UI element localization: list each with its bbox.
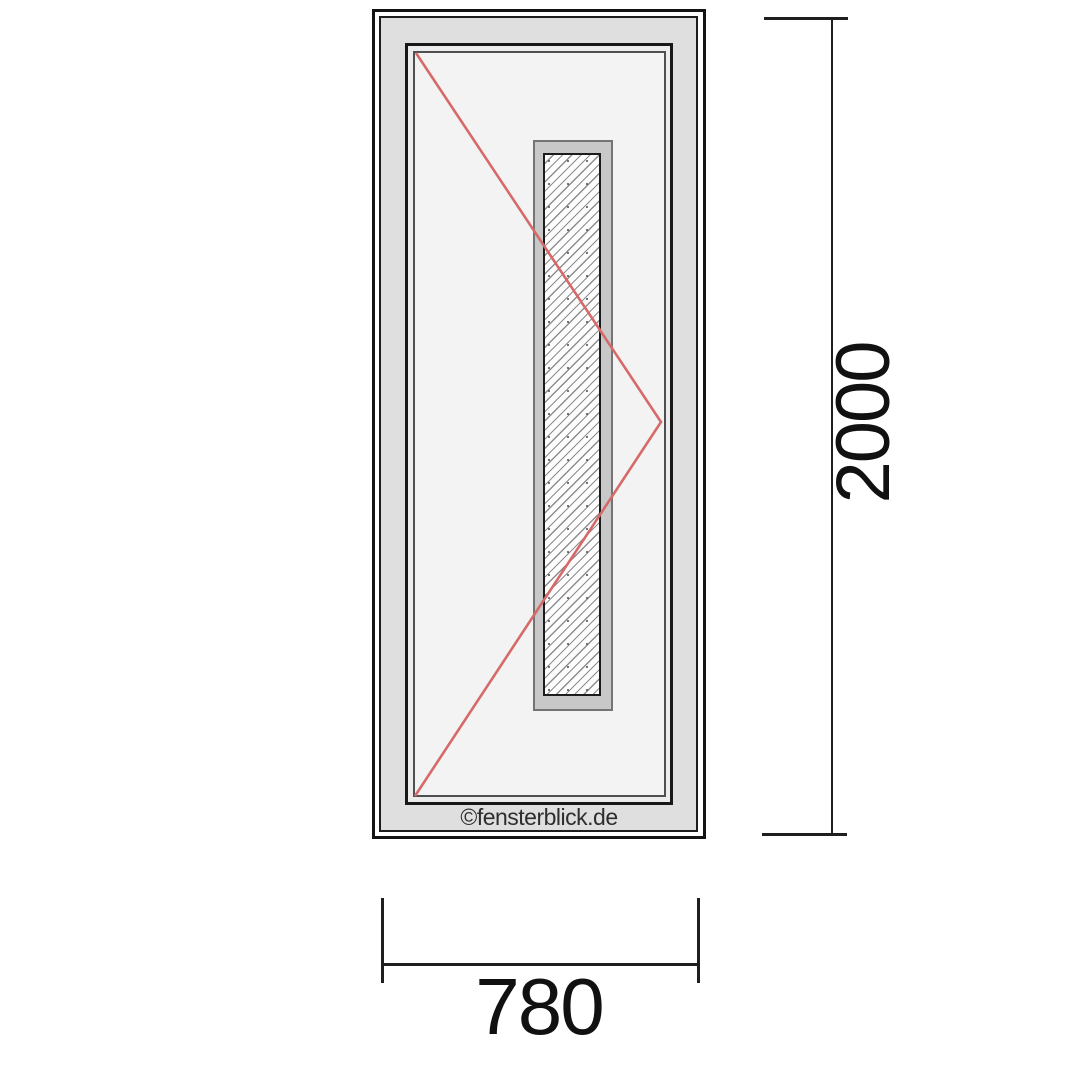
height-dimension-label: 2000 — [823, 313, 903, 533]
height-dimension-tick-bottom — [762, 833, 847, 836]
glass-panel-hatched — [543, 153, 601, 696]
width-dimension-label: 780 — [429, 967, 649, 1047]
door-technical-drawing: ©fensterblick.de 2000 780 — [0, 0, 1080, 1080]
height-dimension-tick-top — [764, 17, 848, 20]
width-dimension-tick-right — [697, 898, 700, 983]
width-dimension-tick-left — [381, 898, 384, 983]
watermark-label: ©fensterblick.de — [372, 803, 706, 831]
